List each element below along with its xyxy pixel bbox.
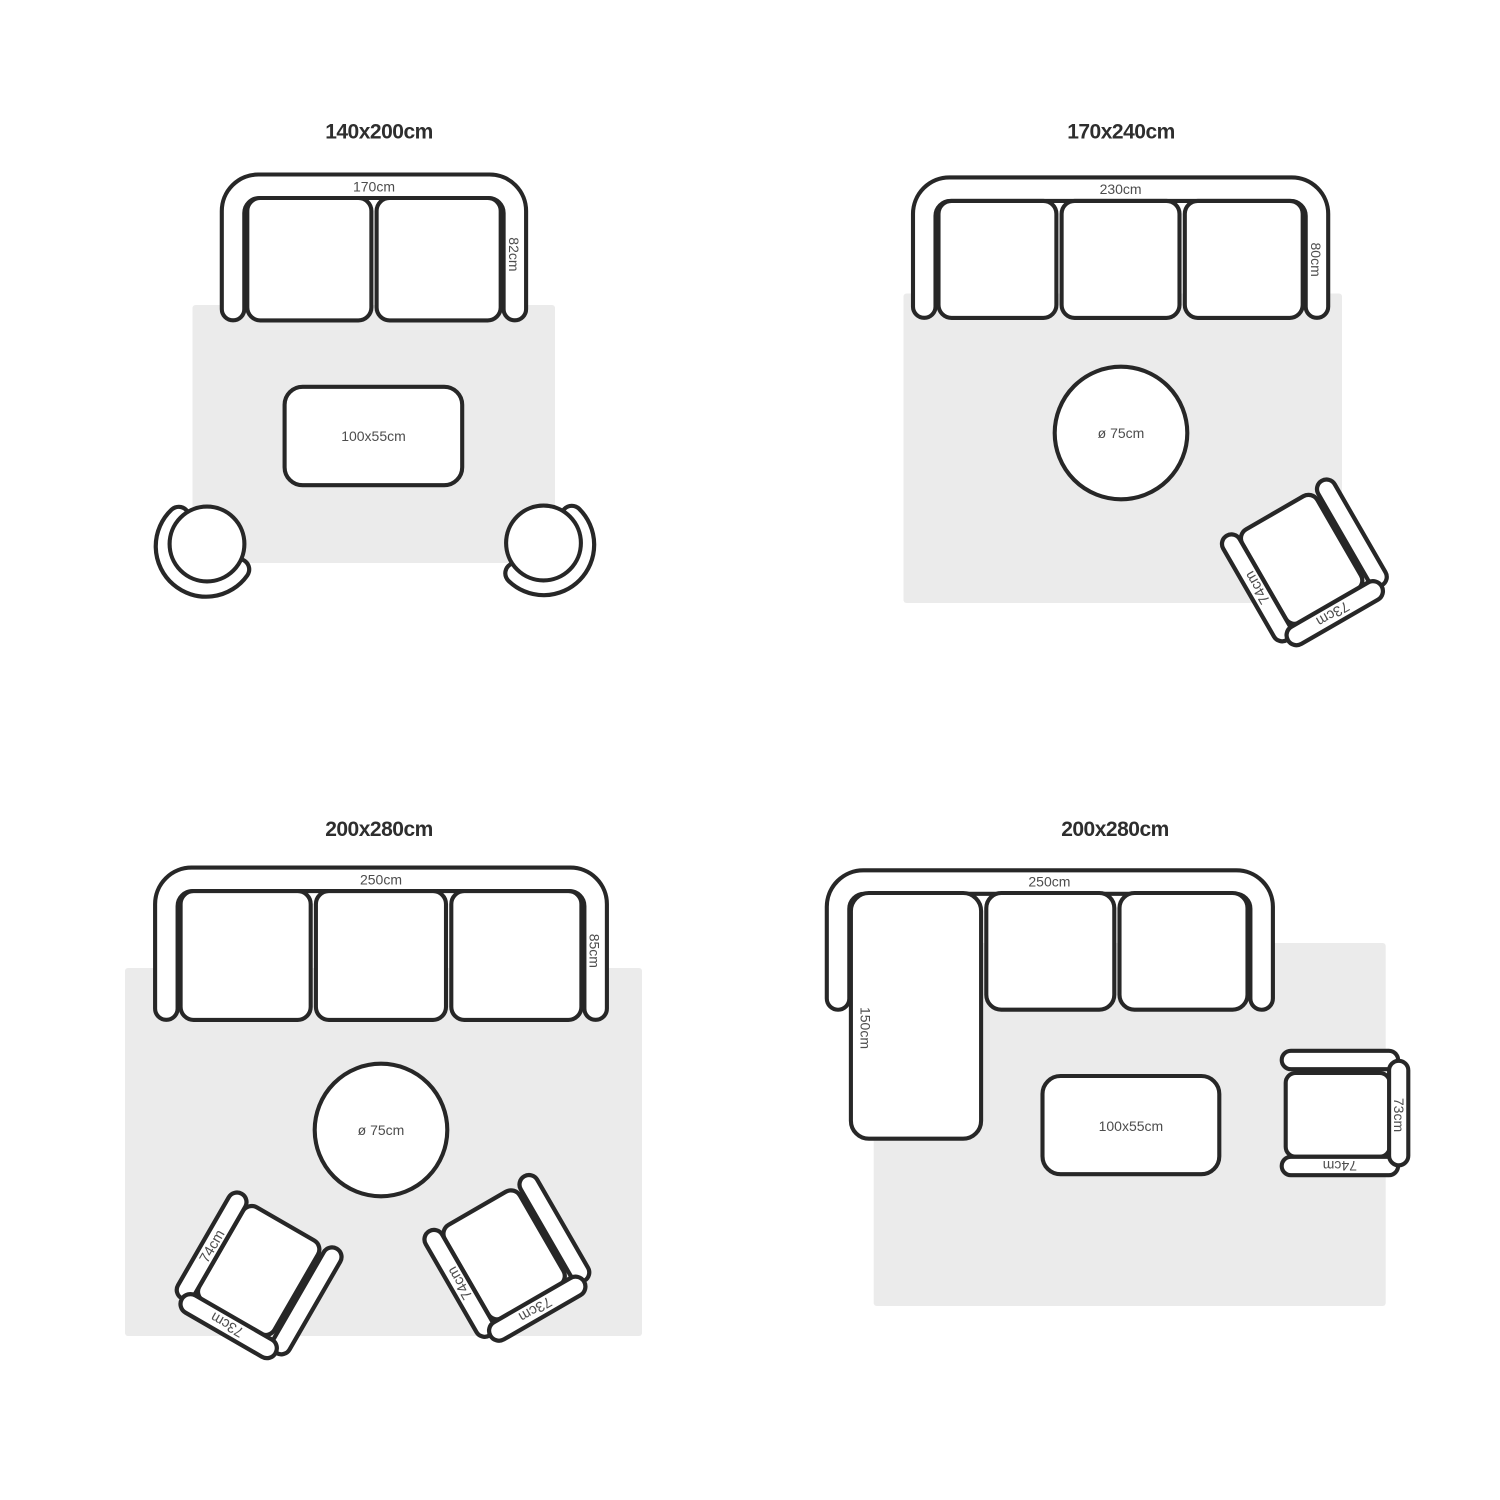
svg-text:170x240cm: 170x240cm (1067, 121, 1175, 144)
svg-text:ø 75cm: ø 75cm (1098, 425, 1145, 441)
svg-text:200x280cm: 200x280cm (325, 818, 433, 841)
svg-text:82cm: 82cm (506, 237, 522, 271)
svg-text:73cm: 73cm (1391, 1098, 1407, 1132)
svg-text:250cm: 250cm (1028, 873, 1070, 889)
svg-text:85cm: 85cm (587, 934, 603, 968)
svg-text:80cm: 80cm (1308, 242, 1324, 276)
svg-text:200x280cm: 200x280cm (1061, 818, 1169, 841)
svg-text:74cm: 74cm (1323, 1158, 1357, 1174)
svg-text:170cm: 170cm (353, 178, 395, 194)
svg-text:150cm: 150cm (858, 1007, 874, 1049)
svg-text:100x55cm: 100x55cm (1099, 1118, 1164, 1134)
svg-text:230cm: 230cm (1100, 181, 1142, 197)
svg-text:ø 75cm: ø 75cm (358, 1122, 405, 1138)
svg-text:140x200cm: 140x200cm (325, 121, 433, 144)
svg-text:250cm: 250cm (360, 871, 402, 887)
svg-text:100x55cm: 100x55cm (341, 428, 406, 444)
